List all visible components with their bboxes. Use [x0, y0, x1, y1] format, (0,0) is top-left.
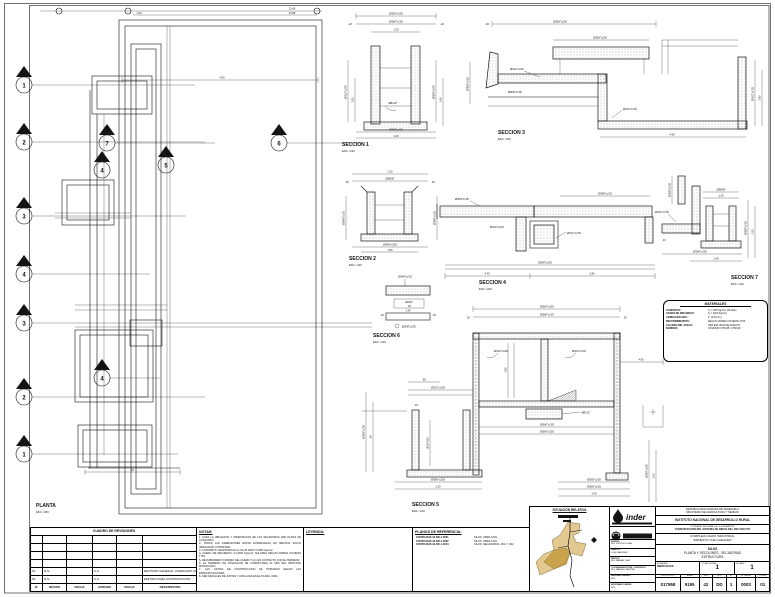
signature-value: ING. ESTRUCTURAL — [611, 543, 654, 546]
materials-label: NORMAS: — [666, 327, 708, 331]
revision-empty-row — [31, 560, 198, 568]
rev-desc: EMITIDO PARA CONSTRUCCION — [143, 576, 198, 584]
rebar-callout: Ø3/8"c/20 — [540, 430, 554, 434]
planos-referencia-title: PLANOS DE REFERENCIA: — [415, 530, 528, 534]
rev-desc: REVISION GENERAL. AGREGADO ACERO DE REFU… — [143, 568, 198, 576]
rebar-callout: Ø3/8"c/20 — [383, 243, 397, 247]
section-marker: 4 — [94, 151, 110, 178]
section-marker: 2 — [16, 378, 205, 405]
dim-label: .20 — [380, 313, 384, 317]
dim-label: 2.80 — [589, 272, 595, 276]
marker-number: 3 — [22, 322, 26, 328]
section-label: SECCION 6 — [373, 333, 400, 339]
rev-fecha2 — [117, 576, 143, 584]
dim-label: .15 — [407, 304, 411, 308]
total-hojas-cell: TOTAL HOJAS: 1 — [700, 562, 735, 574]
escalas-value: INDICADAS — [657, 565, 698, 569]
rebar-callout: Ø3/8"c/20 — [693, 250, 707, 254]
rebar-callout: Ø1/2"c/15 — [426, 437, 430, 449]
rebar-callout: Ø3/8"c/20 — [553, 20, 567, 24]
dim-label: .20 — [662, 238, 666, 242]
revision-empty-row — [31, 544, 198, 552]
section-scale: ESC: 1/20 — [342, 149, 355, 153]
dim-label: 1.40 — [713, 257, 719, 261]
sheet-frame — [5, 4, 771, 594]
subject-cell: SILOS PLANTA Y SECCIONES - SECADORAS EST… — [656, 545, 769, 562]
dim-label: 1.50 — [387, 248, 393, 252]
institute-cell: INSTITUTO NACIONAL DE DESARROLLO RURAL — [656, 516, 769, 525]
revision-row: 01 R.G. A.A. REVISION GENERAL. AGREGADO … — [31, 568, 198, 576]
hoja-cell: HOJA N°: 1 — [735, 562, 769, 574]
rev-num: 00 — [31, 576, 43, 584]
revisions-table: CUADRO DE REVISIONES 01 R.G. A.A. REVISI… — [30, 527, 197, 592]
marker-number: 1 — [22, 84, 26, 90]
revision-row: 00 R.G. A.A. EMITIDO PARA CONSTRUCCION — [31, 576, 198, 584]
dim-label: 2.80 — [758, 95, 762, 101]
country-line2: MINISTERIO DE AGRICULTURA Y TIERRAS — [656, 511, 769, 514]
rebar-callout: 2Ø5/8" — [716, 188, 726, 192]
project-line2: "ERNESTO CHE GUEVARA" — [656, 539, 769, 543]
rebar-callout: Ø1/2"c/15 — [655, 210, 669, 214]
rebar-callout: 4Ø1/2" — [388, 101, 398, 105]
dim-label: 4.90 — [669, 133, 675, 137]
rebar-callout: Ø3/8"c/20 — [587, 478, 601, 482]
drawing-sheet: 13.40 13.58 1.20 4.90 .60 PLANTA ESC: 1/… — [0, 0, 775, 597]
dim-label: 13.58 — [289, 11, 296, 15]
rev-header: N° — [31, 584, 43, 592]
signature-value: ING. MANUEL MEDINA — [611, 569, 654, 572]
section-marker: 4 — [16, 255, 150, 282]
rebar-callout: Ø1/2"c/20 — [494, 349, 508, 353]
marker-number: 7 — [105, 142, 109, 148]
plano-ref-code: 017958-9195-42-DD-1-0004 — [416, 543, 474, 547]
dim-label: 1.50 — [351, 97, 355, 103]
section-scale: ESC: 1/20 — [498, 137, 511, 141]
rebar-callout: Ø1/2"c/15 — [623, 107, 637, 111]
rebar-callout: Ø1/2"c/20 — [490, 225, 504, 229]
plano-ref-desc: SILOS. SECADORAS -001 Y -002 — [474, 543, 514, 547]
code-value: 1 — [730, 578, 732, 591]
institute-name: INSTITUTO NACIONAL DE DESARROLLO RURAL — [675, 518, 750, 522]
rebar-callout: 2Ø5/8" — [385, 177, 395, 181]
marker-number: 4 — [100, 169, 104, 175]
seccion-5: 4Ø1/2" Ø3/8"c/20 Ø3/8"c/15 .20 .20 Ø1/2"… — [362, 305, 664, 514]
seccion-6: Ø3/8"c/15 4Ø1/2" .15 .20 .20 1.40 Ø3/8"c… — [373, 275, 436, 345]
code-cell: N° DIBUJO 0003 — [737, 575, 757, 591]
section-label: SECCION 3 — [498, 130, 525, 136]
rebar-callout: Ø1/2"c/20 — [344, 85, 348, 99]
program-cell: CONVENIO INTEGRAL DE COOPERACION CONSTRU… — [656, 525, 769, 534]
rev-header: DESCRIPCION — [143, 584, 198, 592]
rev-num: 01 — [31, 568, 43, 576]
rev-aprobo: A.A. — [93, 576, 117, 584]
consultant-logo-icon — [611, 531, 653, 540]
rebar-callout: Ø3/8"c/20 — [538, 261, 552, 265]
rebar-callout: Ø3/8"c/15 — [668, 183, 672, 197]
dim-label: 1.40 — [405, 309, 411, 313]
rebar-callout: Ø3/8"c/20 — [432, 85, 436, 99]
marker-number: 2 — [22, 396, 26, 402]
scale-sheet-cell: ESCALAS: INDICADAS TOTAL HOJAS: 1 HOJA N… — [656, 562, 769, 575]
dim-label: 1.50 — [435, 485, 441, 489]
title-block-right-column: REPUBLICA BOLIVARIANA DE VENEZUELA MINIS… — [656, 507, 769, 591]
country-cell: REPUBLICA BOLIVARIANA DE VENEZUELA MINIS… — [656, 507, 769, 516]
revisions-header-row: N° REVISO FECHA APROBO FECHA DESCRIPCION — [31, 584, 198, 592]
rebar-callout: Ø3/8"c/15 — [540, 313, 554, 317]
code-cell: AREA 9195 — [681, 575, 700, 591]
rebar-callout: 4Ø1/2" — [405, 300, 413, 304]
dim-label: .60 — [130, 468, 134, 472]
leyenda-panel: LEYENDA: — [303, 527, 413, 592]
signature-row: COORDINADOR DEL CONTRATO: ING. MANUEL ME… — [610, 566, 655, 575]
rebar-callout: Ø3/8"c/15 — [389, 20, 403, 24]
rebar-callout: Ø3/8"c/15 — [508, 90, 522, 94]
rebar-callout: Ø1/2"c/15 — [567, 231, 581, 235]
rev-header: FECHA — [67, 584, 93, 592]
section-markers: 1 2 3 4 3 2 1 — [16, 66, 372, 462]
code-cell: ET 1 — [727, 575, 737, 591]
dim-label: .60 — [422, 378, 426, 382]
signature-value: ING. — [611, 587, 654, 590]
rebar-callout: Ø3/8"c/15 — [540, 423, 554, 427]
section-scale: ESC: 1/20 — [412, 509, 425, 513]
rev-header: REVISO — [43, 584, 67, 592]
planta-drawing: 13.40 13.58 1.20 4.90 .60 PLANTA ESC: 1/… — [36, 7, 372, 515]
rebar-callout: Ø1/2"c/20 — [431, 386, 445, 390]
rev-aprobo: A.A. — [93, 568, 117, 576]
dim-label: .20 — [432, 313, 436, 317]
revision-empty-row — [31, 536, 198, 544]
materials-box-title: MATERIALES — [680, 302, 751, 307]
marker-number: 3 — [22, 215, 26, 221]
code-value: 42 — [703, 578, 708, 591]
planos-referencia-panel: PLANOS DE REFERENCIA: 017958-9195-42-DD-… — [412, 527, 530, 592]
relative-location-map — [530, 512, 609, 590]
marker-number: 4 — [100, 377, 104, 383]
rebar-callout: Ø3/8"c/15 — [398, 275, 412, 279]
escalas-cell: ESCALAS: INDICADAS — [656, 562, 700, 574]
dim-label: .20 — [431, 180, 435, 184]
section-label: SECCION 5 — [412, 502, 439, 508]
rev-header: APROBO — [93, 584, 117, 592]
signature-row: REVISO: ING. RAFAEL DIAZ — [610, 557, 655, 566]
section-scale: ESC: 1/10 — [373, 340, 386, 344]
seccion-1: Ø3/8"c/20 Ø3/8"c/15 .20 .20 1.20 Ø1/2"c/… — [342, 12, 444, 154]
revision-empty-row — [31, 552, 198, 560]
dim-label: .20 — [485, 22, 489, 26]
rev-header: FECHA — [117, 584, 143, 592]
code-value: 0003 — [741, 578, 751, 591]
dim-label: .15 — [414, 403, 418, 407]
seccion-2: 1.20 2Ø5/8" .20 .20 Ø3/8"c/15 Ø3/8"c/15 … — [342, 170, 438, 268]
code-cell: PROYECTO N° 017958 — [656, 575, 681, 591]
project-cell: COMPLEJO AGRO INDUSTRIAL "ERNESTO CHE GU… — [656, 534, 769, 545]
rebar-callout: Ø1/2"c/20 — [572, 349, 586, 353]
dim-label: 1.40 — [439, 97, 443, 103]
code-cell: N° REV 01 — [756, 575, 769, 591]
marker-number: 1 — [22, 453, 26, 459]
hoja-value: 1 — [736, 565, 768, 571]
dim-label: 3.40 — [591, 492, 597, 496]
plan-scale: ESC: 1/50 — [36, 510, 49, 514]
code-value: DD — [716, 578, 722, 591]
dim-label: 1.20 — [136, 11, 142, 15]
materials-box: MATERIALES CONCRETO: f'c = 250 Kg/cm² (2… — [663, 300, 768, 362]
section-label: SECCION 7 — [731, 275, 758, 281]
rebar-callout: Ø3/8"c/15 — [342, 211, 346, 225]
signature-row: APROBADO INDER: ING. — [610, 583, 655, 591]
code-value: 01 — [760, 578, 765, 591]
plan-title: PLANTA — [36, 503, 56, 509]
program-line2: CONSTRUCCION DEL SISTEMA DE RIEGO DEL RI… — [656, 528, 769, 531]
dim-label: .20 — [345, 180, 349, 184]
section-marker: 1 — [16, 66, 195, 93]
inder-logo-icon: inder — [611, 508, 653, 525]
title-block-left-column: inder DISEÑO: ING. ESTRUCTURAL DIBUJO: J… — [610, 507, 656, 591]
section-marker: 2 — [16, 123, 205, 150]
rebar-callout: Ø3/8"c/15 — [744, 221, 748, 235]
dim-label: 2.80 — [504, 367, 508, 373]
rebar-callout: Ø3/8"c/15 — [598, 192, 612, 196]
dim-label: .20 — [440, 22, 444, 26]
section-label: SECCION 2 — [349, 256, 376, 262]
section-label: SECCION 4 — [479, 280, 506, 286]
signature-row: DISEÑO: ING. ESTRUCTURAL — [610, 540, 655, 549]
rebar-callout: 4Ø1/2" — [581, 411, 591, 415]
rebar-callout: Ø3/8"c/20 — [389, 12, 403, 16]
rebar-callout: Ø1/2"c/20 — [510, 67, 524, 71]
seccion-7: Ø3/8"c/15 1.20 2Ø5/8" Ø1/2"c/15 .20 Ø3/8… — [655, 176, 758, 286]
leyenda-title: LEYENDA: — [306, 530, 411, 534]
section-marker: 7 — [99, 124, 215, 151]
rebar-callout: Ø3/8"c/15 — [455, 197, 469, 201]
materials-value: COVENIN 1753-85 / 1756-98 — [708, 327, 741, 331]
code-value: 9195 — [685, 578, 695, 591]
dim-label: 1.20 — [718, 194, 724, 198]
code-value: 017958 — [661, 578, 676, 591]
dim-label: 1.20 — [393, 28, 399, 32]
marker-number: 4 — [22, 273, 26, 279]
rev-fecha — [67, 568, 93, 576]
inder-logo-cell: inder — [610, 507, 655, 527]
title-block: inder DISEÑO: ING. ESTRUCTURAL DIBUJO: J… — [609, 506, 770, 592]
rebar-callout: Ø3/8"c/15 — [433, 211, 437, 225]
code-cell: DOC DD — [713, 575, 727, 591]
rebar-callout: Ø3/8"c/20 — [645, 464, 649, 478]
code-cell: DIS 42 — [700, 575, 714, 591]
nota-line: 8- VER DETALLES DE JUNTAS Y ANCLAJES EN … — [199, 575, 301, 578]
dim-label: .20 — [466, 316, 470, 320]
situacion-relativa-panel: SITUACION RELATIVA — [529, 506, 610, 592]
plano-ref-row: 017958-9195-42-DD-1-0004 SILOS. SECADORA… — [416, 543, 528, 547]
marker-number: 5 — [164, 164, 168, 170]
notas-panel: NOTAS: 1- PARA LA UBICACION Y ORIENTACIO… — [196, 527, 304, 592]
dim-label: 4.90 — [638, 358, 644, 362]
marker-number: 2 — [22, 141, 26, 147]
revisions-title: CUADRO DE REVISIONES — [31, 528, 198, 536]
marker-number: 6 — [277, 142, 281, 148]
seccion-4: Ø3/8"c/20 3.40 2.80 Ø3/8"c/15 Ø1/2"c/20 … — [437, 192, 655, 292]
signature-value: ING. RAFAEL DIAZ — [611, 560, 654, 563]
consultant-logo-cell — [610, 527, 655, 540]
section-label: SECCION 1 — [342, 142, 369, 148]
rebar-callout: Ø3/8"c/20 — [431, 478, 445, 482]
rebar-callout: Ø3/8"c/15 — [587, 485, 601, 489]
location-marker-icon — [591, 537, 597, 543]
rev-reviso: R.G. — [43, 568, 67, 576]
rev-fecha — [67, 576, 93, 584]
section-marker: 5 — [158, 146, 174, 173]
rev-reviso: R.G. — [43, 576, 67, 584]
dim-label: 1.50 — [652, 473, 656, 479]
signature-row: REVISADO INDER: ING. — [610, 575, 655, 584]
inder-wordmark: inder — [626, 513, 646, 522]
section-scale: ESC: 1/10 — [731, 282, 744, 286]
subject-line3: ESTRUCTURA — [656, 555, 769, 559]
total-hojas-value: 1 — [701, 565, 733, 571]
dim-label: 4.90 — [219, 76, 225, 80]
materials-row: NORMAS: COVENIN 1753-85 / 1756-98 — [666, 327, 765, 331]
dim-label: 1.40 — [393, 134, 399, 138]
dim-label: 13.40 — [289, 7, 296, 11]
dim-label: .20 — [623, 316, 627, 320]
signature-value: JOSE SANCHEZ — [611, 552, 654, 555]
seccion-3: Ø3/8"c/20 Ø3/8"c/20 .20 Ø3/8"c/15 Ø1/2"c… — [466, 20, 763, 142]
rebar-callout: Ø3/8"c/15 — [466, 77, 470, 91]
signature-value: ING. — [611, 578, 654, 581]
drawing-number-row: PROYECTO N° 017958 AREA 9195 DIS 42 DOC … — [656, 575, 769, 591]
dim-label: 1.50 — [751, 229, 755, 235]
rebar-callout: Ø3/8"c/15 — [362, 425, 366, 439]
rebar-callout: Ø3/8"c/20 — [593, 36, 607, 40]
rebar-callout: Ø3/8"c/15 — [389, 128, 403, 132]
dim-label: .30 — [369, 435, 373, 439]
notas-title: NOTAS: — [199, 530, 302, 534]
rebar-callout: Ø3/8"c/25 — [402, 325, 416, 329]
dim-label: 1.20 — [387, 170, 393, 174]
section-scale: ESC: 1/20 — [349, 263, 362, 267]
revisions-title-row: CUADRO DE REVISIONES — [31, 528, 198, 536]
dim-label: .20 — [348, 22, 352, 26]
signature-row: DIBUJO: JOSE SANCHEZ — [610, 549, 655, 558]
section-scale: ESC: 1/20 — [479, 287, 492, 291]
rev-fecha2 — [117, 568, 143, 576]
dim-label: 3.40 — [484, 272, 490, 276]
rebar-callout: Ø1/2"c/15 — [751, 87, 755, 101]
rebar-callout: Ø3/8"c/20 — [540, 305, 554, 309]
